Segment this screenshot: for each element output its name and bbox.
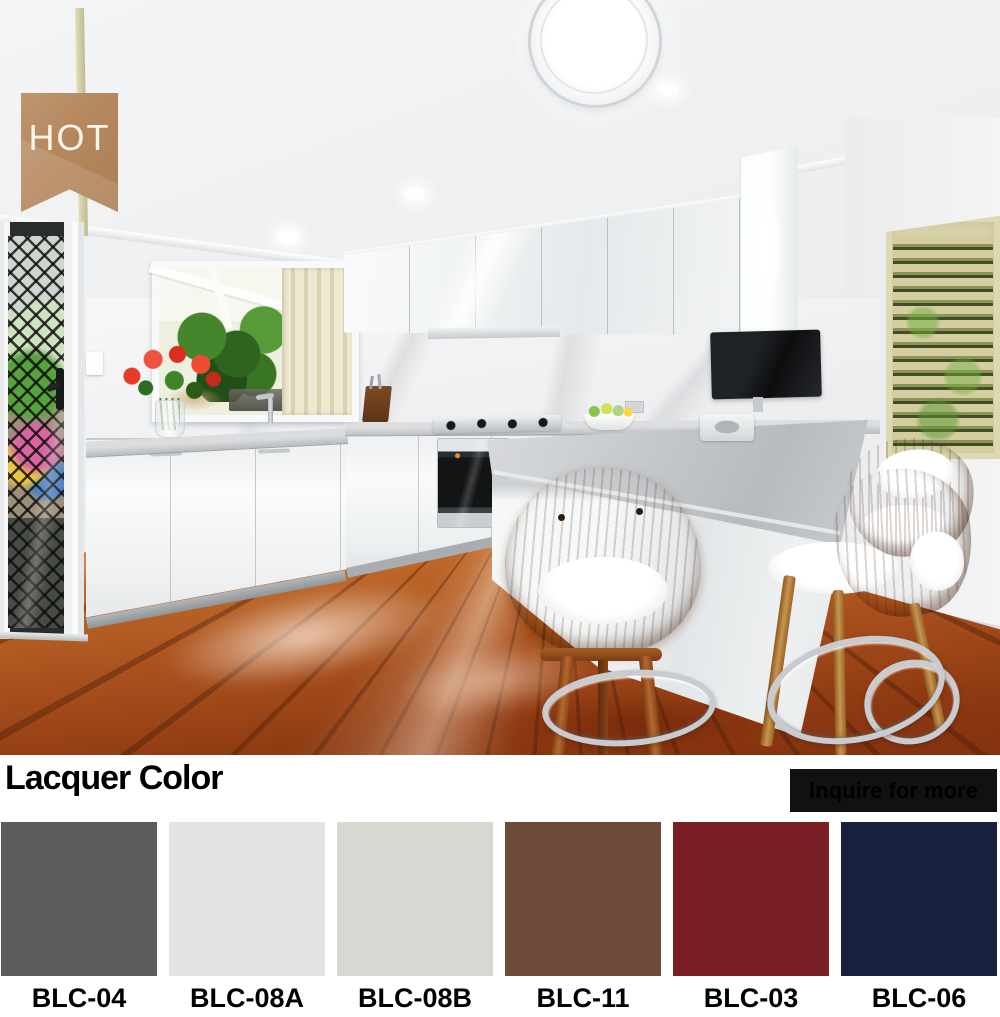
downlight bbox=[658, 84, 678, 96]
color-swatch[interactable]: BLC-03 bbox=[673, 822, 829, 1014]
red-flowers bbox=[116, 342, 222, 404]
light-switch bbox=[86, 352, 103, 375]
color-swatch[interactable]: BLC-08A bbox=[169, 822, 325, 1014]
stool-screw bbox=[636, 508, 643, 515]
knife-block bbox=[362, 386, 392, 422]
security-screen-door bbox=[0, 222, 84, 639]
color-chip[interactable] bbox=[1, 822, 157, 976]
product-card: HOT Lacquer Color Inquire for more BLC-0… bbox=[0, 0, 1000, 1017]
shutter-slats bbox=[893, 236, 993, 452]
stool-back-cushion bbox=[906, 528, 968, 594]
upper-cabinets bbox=[344, 198, 742, 338]
glass-vase bbox=[155, 400, 185, 438]
color-code-label: BLC-11 bbox=[536, 983, 629, 1014]
swatch-row: BLC-04 BLC-08A BLC-08B BLC-11 BLC-03 BLC… bbox=[1, 822, 997, 1014]
hot-ribbon-badge: HOT bbox=[21, 93, 118, 212]
color-chip[interactable] bbox=[169, 822, 325, 976]
fruit bbox=[586, 403, 632, 417]
gas-cooktop bbox=[433, 414, 561, 433]
downlight bbox=[405, 188, 425, 200]
color-chip[interactable] bbox=[841, 822, 997, 976]
rangehood bbox=[428, 326, 560, 339]
color-swatch[interactable]: BLC-11 bbox=[505, 822, 661, 1014]
wall-tv bbox=[710, 330, 822, 400]
color-chip[interactable] bbox=[673, 822, 829, 976]
stool-screw bbox=[558, 514, 565, 521]
downlight bbox=[278, 231, 298, 243]
bar-stool-back bbox=[505, 468, 701, 654]
section-title: Lacquer Color bbox=[5, 759, 222, 798]
inquire-for-more-button[interactable]: Inquire for more bbox=[790, 769, 997, 812]
tall-cabinet bbox=[740, 146, 798, 334]
door-mesh bbox=[8, 236, 64, 628]
hot-badge-label: HOT bbox=[29, 117, 111, 212]
vertical-blinds bbox=[282, 268, 352, 415]
color-swatch[interactable]: BLC-06 bbox=[841, 822, 997, 1014]
tv-mount bbox=[753, 397, 763, 412]
color-code-label: BLC-08B bbox=[358, 983, 472, 1014]
faucet bbox=[268, 398, 273, 424]
shutter-window bbox=[886, 216, 1000, 459]
countertop-speaker bbox=[700, 414, 754, 441]
stool-back-cushion bbox=[538, 557, 667, 624]
color-code-label: BLC-04 bbox=[32, 983, 127, 1014]
color-chip[interactable] bbox=[505, 822, 661, 976]
color-chip[interactable] bbox=[337, 822, 493, 976]
color-swatch[interactable]: BLC-04 bbox=[1, 822, 157, 1014]
kitchen-photo: HOT bbox=[0, 0, 1000, 755]
color-code-label: BLC-03 bbox=[704, 983, 799, 1014]
lacquer-color-section: Lacquer Color Inquire for more BLC-04 BL… bbox=[0, 755, 1000, 1017]
color-swatch[interactable]: BLC-08B bbox=[337, 822, 493, 1014]
color-code-label: BLC-06 bbox=[872, 983, 967, 1014]
color-code-label: BLC-08A bbox=[190, 983, 304, 1014]
